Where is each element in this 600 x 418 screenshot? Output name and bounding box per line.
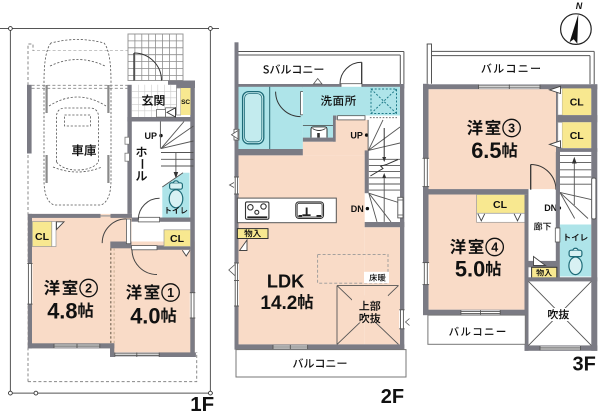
svg-text:1: 1	[167, 286, 174, 300]
svg-text:2F: 2F	[381, 386, 404, 408]
svg-text:4.8: 4.8	[47, 298, 77, 323]
svg-text:5.0: 5.0	[455, 257, 485, 282]
svg-text:SC: SC	[181, 99, 190, 106]
svg-text:4.0: 4.0	[130, 303, 160, 328]
svg-text:LDK: LDK	[267, 272, 304, 292]
svg-text:3: 3	[508, 121, 515, 135]
svg-text:14.2: 14.2	[260, 293, 297, 314]
svg-text:N: N	[576, 1, 583, 11]
svg-text:CL: CL	[35, 231, 50, 243]
svg-text:3F: 3F	[573, 354, 596, 376]
svg-text:DN: DN	[544, 203, 557, 213]
svg-text:6.5: 6.5	[471, 138, 501, 163]
svg-text:CL: CL	[170, 233, 185, 245]
svg-text:CL: CL	[493, 199, 508, 211]
svg-text:1F: 1F	[190, 393, 214, 413]
svg-text:CL: CL	[570, 130, 585, 142]
svg-text:CL: CL	[570, 97, 585, 109]
svg-text:2: 2	[85, 281, 92, 295]
svg-text:UP: UP	[144, 131, 157, 141]
svg-text:UP: UP	[350, 130, 363, 140]
svg-text:DN: DN	[351, 204, 364, 214]
svg-text:4: 4	[491, 240, 498, 254]
